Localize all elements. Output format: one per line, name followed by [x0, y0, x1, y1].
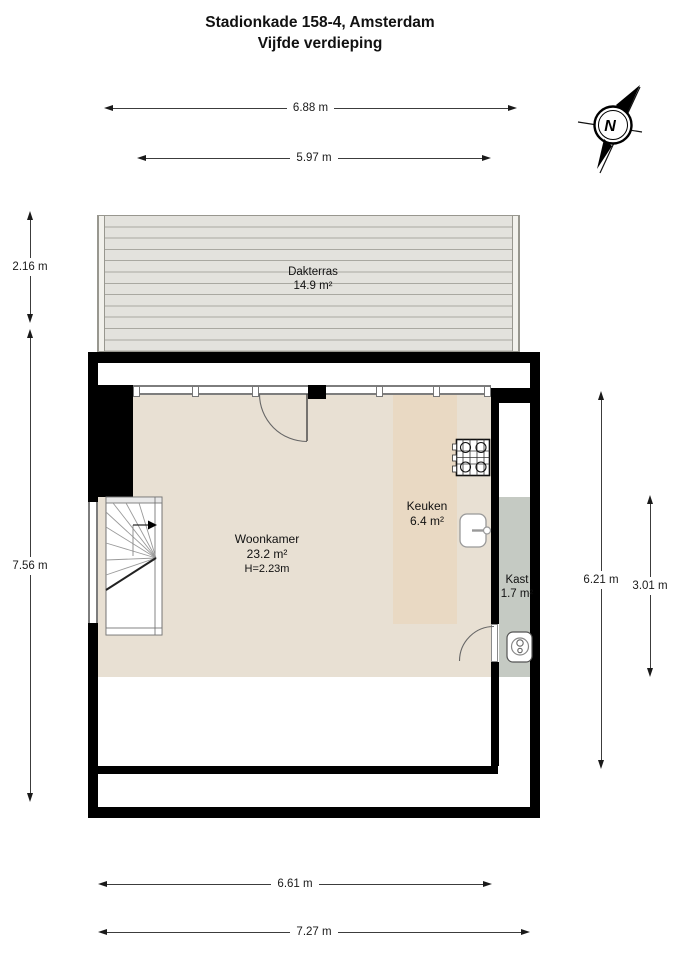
dimension-top-outer: 6.88 m: [104, 102, 517, 114]
wall-kitchen-closet-lower: [491, 662, 499, 766]
dimension-left-terrace: 2.16 m: [24, 211, 36, 323]
compass-rose-icon: N: [578, 85, 642, 173]
floor-subtitle: Vijfde verdieping: [0, 33, 640, 54]
floorplan: Stadionkade 158-4, Amsterdam Vijfde verd…: [0, 0, 679, 960]
left-window: [88, 502, 98, 623]
wall-kitchen-closet-upper: [491, 388, 499, 624]
wall-top: [88, 352, 540, 363]
window-mullion: [133, 386, 140, 397]
dimension-right-closet: 3.01 m: [644, 495, 656, 677]
window-mullion: [192, 386, 199, 397]
kitchen-label: Keuken 6.4 m²: [407, 499, 448, 529]
facade-door-pier: [308, 385, 326, 399]
terrace-edge-left: [98, 216, 105, 351]
compass-north-label: N: [604, 118, 616, 135]
window-mullion: [376, 386, 383, 397]
dimension-bottom-inner: 6.61 m: [98, 878, 492, 890]
page-title: Stadionkade 158-4, Amsterdam Vijfde verd…: [0, 12, 640, 54]
window-mullion: [433, 386, 440, 397]
dimension-left-main: 7.56 m: [24, 329, 36, 802]
wall-interior-bottom: [95, 766, 498, 774]
dimension-bottom-outer: 7.27 m: [98, 926, 530, 938]
wall-closet-top: [491, 388, 540, 403]
wall-left-mass: [88, 385, 133, 497]
dimension-top-inner: 5.97 m: [137, 152, 491, 164]
terrace-label: Dakterras 14.9 m²: [288, 265, 338, 293]
wall-bottom: [88, 807, 540, 818]
closet-label: Kast 1.7 m²: [501, 573, 534, 601]
address-title: Stadionkade 158-4, Amsterdam: [0, 12, 640, 33]
dimension-right-main: 6.21 m: [595, 391, 607, 769]
wall-stair-stub: [117, 620, 147, 629]
living-room-label: Woonkamer 23.2 m² H=2.23m: [235, 532, 299, 577]
window-mullion: [484, 386, 491, 397]
window-mullion: [252, 386, 259, 397]
terrace-edge-right: [512, 216, 519, 351]
